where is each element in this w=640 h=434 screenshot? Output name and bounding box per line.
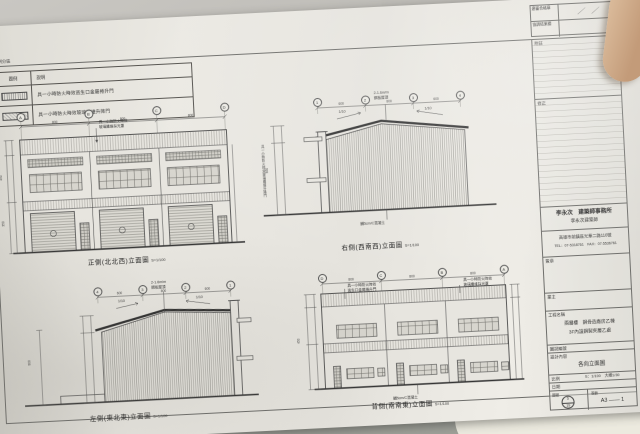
revision-box: 修正 xyxy=(535,96,626,208)
elevation-right-side: 1 2 3 4 600 800 600 2-1.6m/m 鋼板屋頂 1/10 1… xyxy=(246,85,510,278)
dim-label: 350 xyxy=(1,221,5,227)
annotation: 鋼板屋頂 xyxy=(151,284,166,289)
slope-label: 1/10 xyxy=(118,298,125,303)
dim-label: 650 xyxy=(265,168,269,174)
grid-bubble: 1 xyxy=(312,97,321,106)
dim-label: 450 xyxy=(297,338,301,344)
grid-bubble: 3 xyxy=(408,92,417,101)
dim-label: 450 xyxy=(0,175,3,181)
grid-bubble: 1 xyxy=(225,280,234,289)
doc-number-label: 圖說編號 xyxy=(550,345,567,352)
project-line: 3F內設鋼製夾層乙處 xyxy=(547,326,633,336)
grid-bubble: A xyxy=(16,112,25,121)
project-label: 工程名稱 xyxy=(548,312,565,319)
title-block: 附註 修正 李永次 建築師事務所 李永次建築師 高雄市前鎮區光華二路110號 T… xyxy=(531,35,638,411)
grid-bubble: D xyxy=(317,273,326,282)
slope-label: 1/10 xyxy=(196,295,203,300)
grid-bubble: 2 xyxy=(360,95,369,104)
scale-label: S=1/100 xyxy=(405,243,419,248)
scale-label: S=1/100 xyxy=(153,414,167,419)
annotation: 鋼板屋頂 xyxy=(374,95,389,100)
approval-label: 建審合格章 xyxy=(530,5,559,21)
revision-label: 修正 xyxy=(537,100,546,106)
seal-box: 簽章 xyxy=(543,253,631,293)
grid-bubble: C xyxy=(152,105,161,114)
slope-label: 1/10 xyxy=(424,106,431,111)
elevation-rear: D C B A 800 800 800 具一小時防火時效 逃生口金屬捲升門 具一… xyxy=(287,262,531,424)
elevation-left-side: 4 3 2 1 600 800 600 2-1.6m/m 鋼板屋頂 1/10 1… xyxy=(11,277,268,434)
grid-bubble: 2 xyxy=(181,282,190,291)
sheet-no-label: 圖號 xyxy=(552,392,559,397)
grid-bubble: A xyxy=(499,264,508,273)
scale-label: S=1/100 xyxy=(151,258,165,263)
content-label: 設計內容 xyxy=(550,354,567,361)
notes-label: 附註 xyxy=(534,41,543,47)
legend-caption: 圖例分區 xyxy=(0,58,11,65)
dim-label: 800 xyxy=(27,360,31,366)
coordination-label: 協調結果欄 xyxy=(531,21,560,38)
legend-col-symbol: 圖例 xyxy=(0,71,32,86)
date-row-label: 日期 xyxy=(552,384,561,390)
phone-line: TEL：07-5318761 FAX：07-5536761 xyxy=(543,240,629,249)
sheet-count-label: 張數 xyxy=(591,390,598,395)
scale-label: S=1/100 xyxy=(435,402,449,407)
paper-sheet: 圖例分區 圖例 說明 具一小時防火時效逃生口金屬捲升門 具一小時防火時效玻璃纖維… xyxy=(0,0,640,434)
legend-swatch-metal-door xyxy=(1,91,27,100)
seal-label: 簽章 xyxy=(545,258,554,264)
sheet-number-box: 圖號 5 19 張數 A3 —— 1 xyxy=(550,387,637,411)
elevation-front: A B C D 800 800 800 具一小時防火時效 玻璃纖維採光罩 450… xyxy=(0,98,252,290)
grid-bubble: D xyxy=(219,102,228,111)
grid-bubble: C xyxy=(376,270,385,279)
photo-background: 圖例分區 圖例 說明 具一小時防火時效逃生口金屬捲升門 具一小時防火時效玻璃纖維… xyxy=(0,0,640,434)
owner-label: 業主 xyxy=(547,294,556,300)
grid-bubble: 3 xyxy=(138,284,147,293)
grid-bubble: 4 xyxy=(455,90,464,99)
slope-label: 1/10 xyxy=(339,110,346,115)
grid-bubble: 4 xyxy=(93,287,102,296)
grid-bubble: B xyxy=(437,267,446,276)
project-name-box: 工程名稱 兩層樓 鋼骨造廠房乙棟 3F內設鋼製夾層乙處 xyxy=(546,307,634,345)
grid-bubble: B xyxy=(84,109,93,118)
